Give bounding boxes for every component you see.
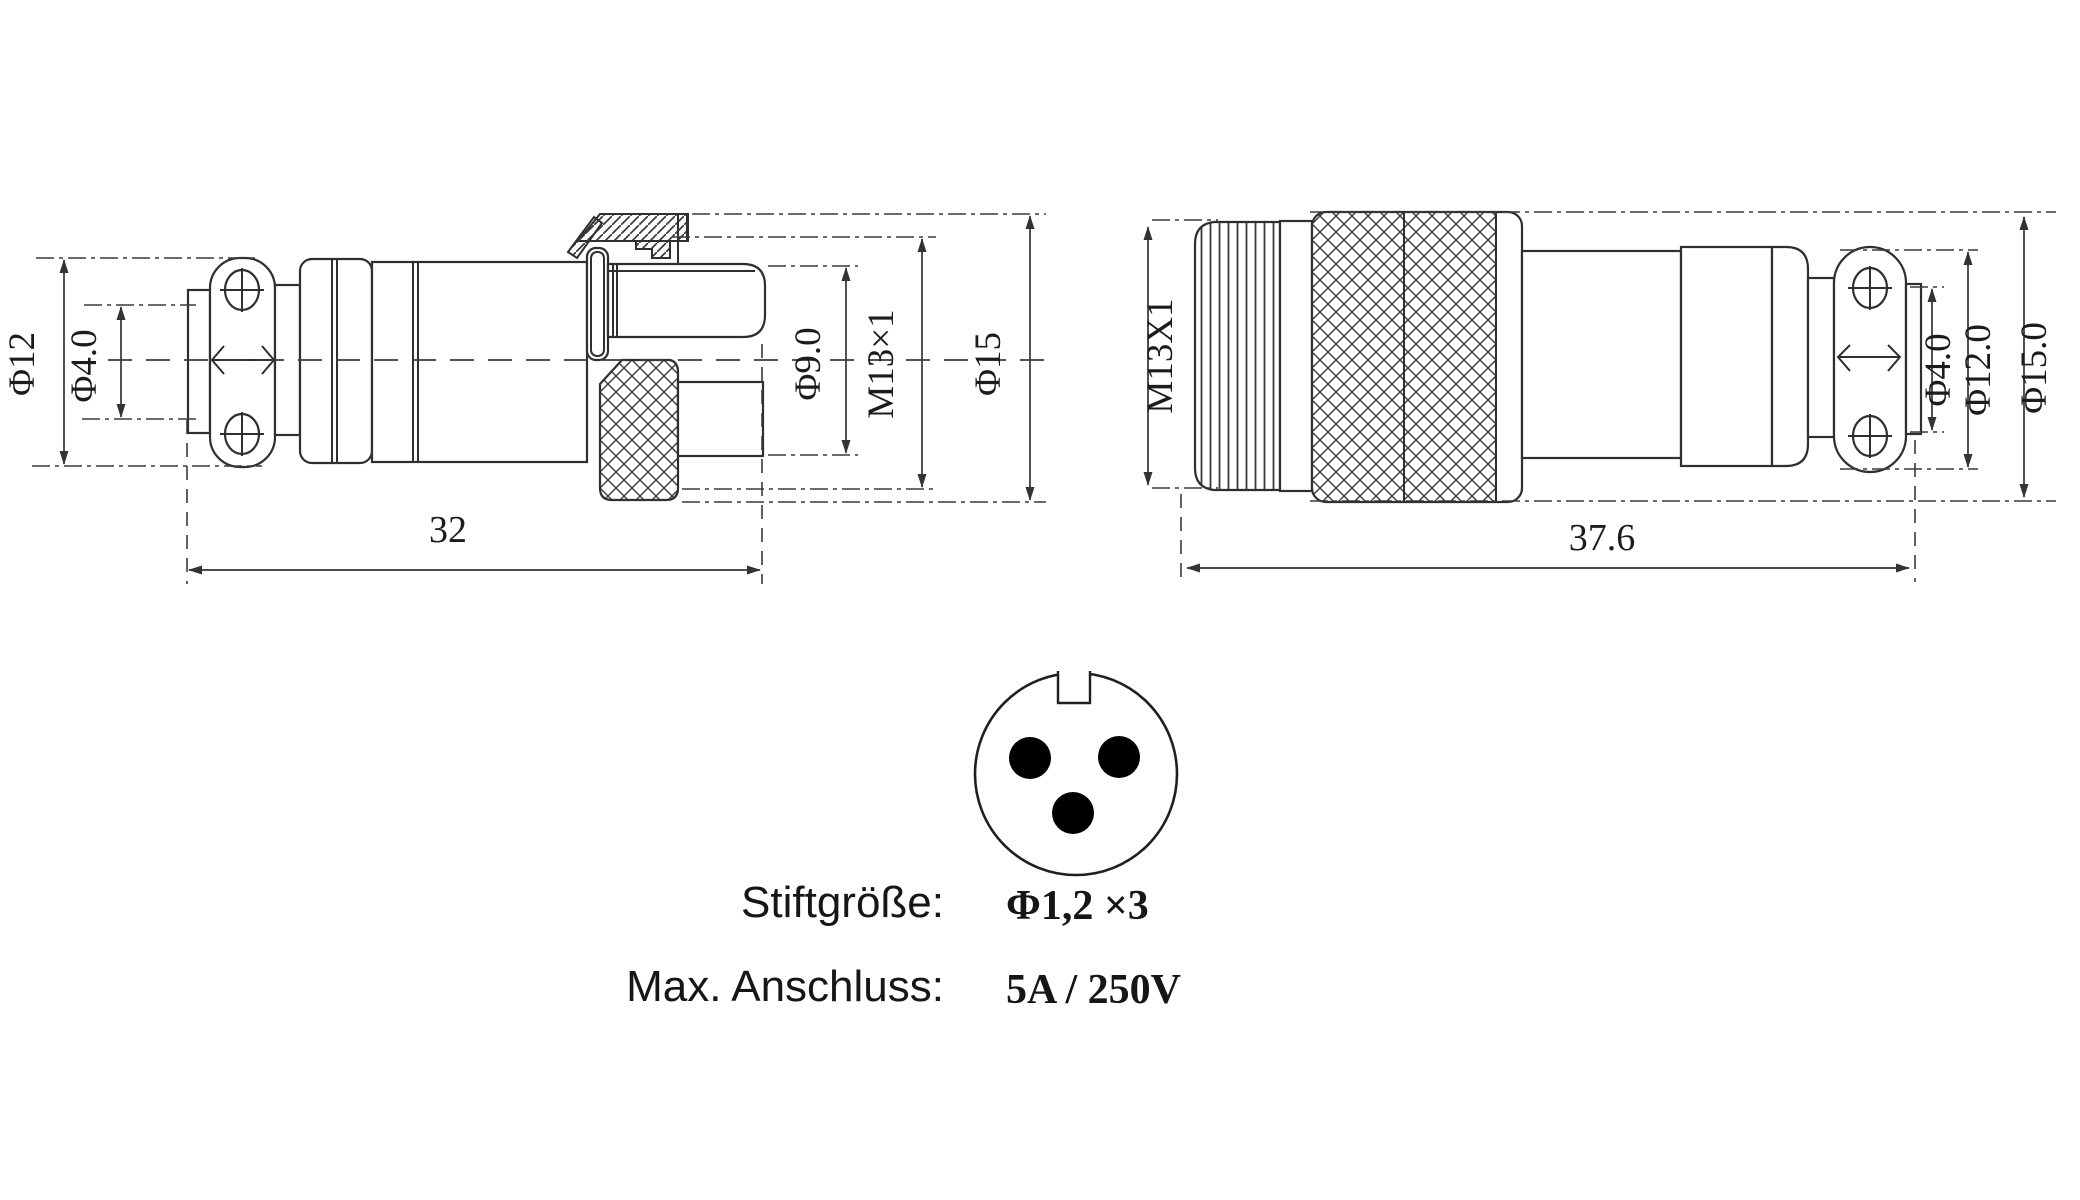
rear-flange — [188, 290, 210, 433]
dim-label-phi9: Φ9.0 — [788, 327, 829, 400]
spec-table: Stiftgröße: Φ1,2 ×3 Max. Anschluss: 5A /… — [626, 878, 1181, 1013]
right-connector-drawing: M13X1 Φ4.0 Φ12.0 Φ15.0 37.6 — [1140, 212, 2056, 582]
notch-mask — [1059, 665, 1089, 702]
technical-drawing-page: Φ12 Φ4.0 Φ9.0 M13×1 Φ15 32 — [0, 0, 2080, 1200]
pin-size-label: Stiftgröße: — [741, 878, 944, 927]
dim-label-phi4: Φ4.0 — [64, 329, 105, 402]
dim-label-thread: M13×1 — [861, 309, 902, 418]
socket-band — [1681, 247, 1772, 466]
max-rating-label: Max. Anschluss: — [626, 962, 944, 1011]
socket-neck — [1808, 278, 1834, 437]
cable-clamp-saddle — [636, 241, 670, 258]
dim-label-phi4: Φ4.0 — [1918, 333, 1959, 406]
pin-size-value: Φ1,2 ×3 — [1006, 883, 1149, 929]
thread-washer — [1280, 221, 1312, 491]
thread-section — [1195, 222, 1280, 490]
dim-label-phi12: Φ12 — [2, 332, 43, 396]
socket-cap — [1772, 247, 1808, 466]
dim-label-length: 37.6 — [1569, 517, 1636, 559]
max-rating-value: 5A / 250V — [1006, 967, 1181, 1013]
pin — [1052, 792, 1094, 834]
pin — [1009, 737, 1051, 779]
pin — [1098, 736, 1140, 778]
housing-body — [372, 262, 587, 462]
socket-body — [1522, 251, 1681, 458]
dim-label-phi12: Φ12.0 — [1958, 324, 1999, 416]
plug-barrel — [608, 264, 765, 337]
coupling-nut-knurl — [600, 360, 678, 500]
dim-label-phi15: Φ15 — [968, 332, 1009, 396]
pin-face-diagram — [975, 665, 1177, 875]
connector-drawing-svg: Φ12 Φ4.0 Φ9.0 M13×1 Φ15 32 — [0, 0, 2080, 1200]
nut-rear-sleeve — [678, 382, 763, 456]
dim-label-phi15: Φ15.0 — [2014, 322, 2055, 414]
dim-label-thread: M13X1 — [1140, 298, 1181, 413]
left-connector-drawing: Φ12 Φ4.0 Φ9.0 M13×1 Φ15 32 — [2, 214, 1048, 584]
dim-label-length: 32 — [429, 509, 467, 551]
